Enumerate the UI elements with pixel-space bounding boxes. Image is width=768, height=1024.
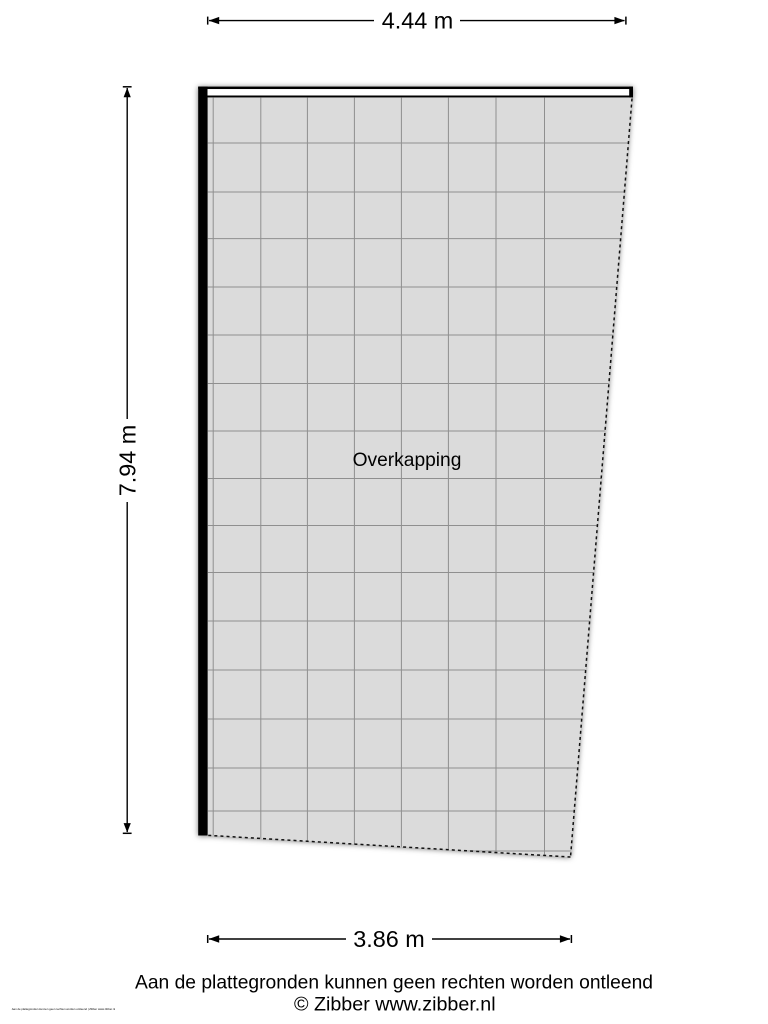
svg-text:7.94 m: 7.94 m: [114, 425, 140, 497]
svg-text:Aan de plattegronden kunnen ge: Aan de plattegronden kunnen geen rechten…: [135, 973, 653, 994]
svg-text:3.86 m: 3.86 m: [353, 926, 425, 952]
svg-text:4.44 m: 4.44 m: [382, 7, 454, 33]
svg-text:Aan de plattegronden kunnen ge: Aan de plattegronden kunnen geen rechten…: [12, 1007, 116, 1011]
svg-text:© Zibber www.zibber.nl: © Zibber www.zibber.nl: [294, 993, 496, 1015]
svg-text:Overkapping: Overkapping: [353, 450, 462, 471]
